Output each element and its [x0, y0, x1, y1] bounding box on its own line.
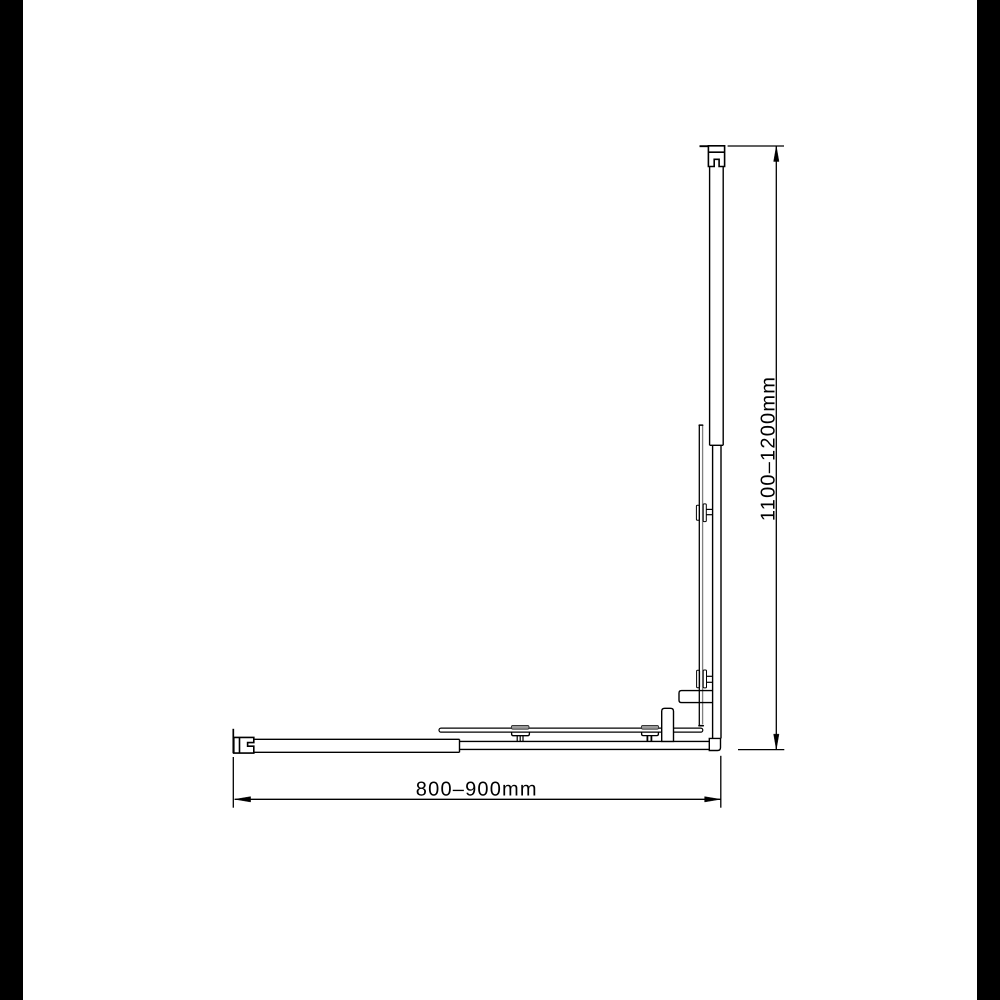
svg-text:800–900mm: 800–900mm: [416, 779, 538, 801]
svg-text:1100–1200mm: 1100–1200mm: [757, 376, 779, 521]
